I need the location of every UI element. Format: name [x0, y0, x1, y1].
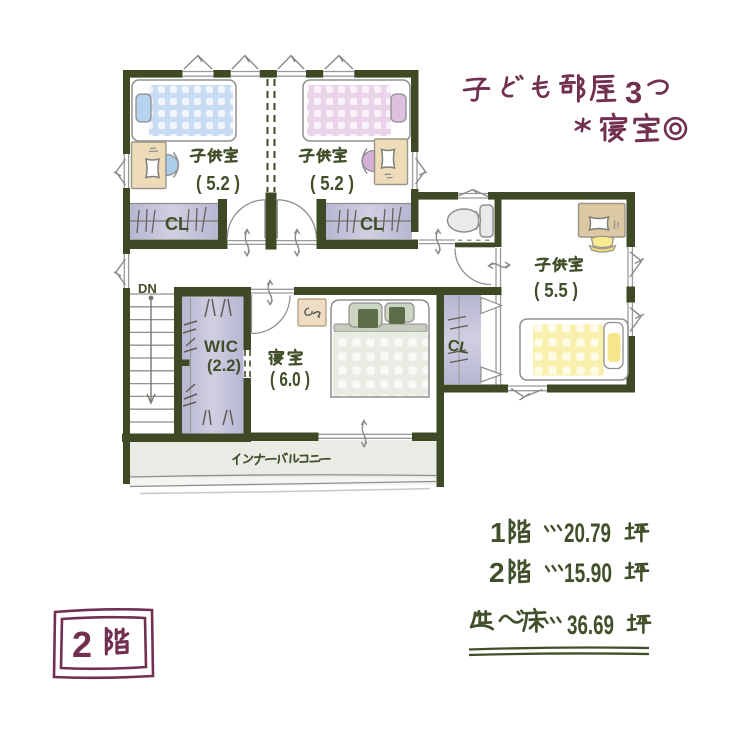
svg-text:20.79: 20.79: [564, 518, 611, 548]
svg-text:( 6.0 ): ( 6.0 ): [270, 369, 310, 391]
svg-text:15.90: 15.90: [564, 558, 612, 588]
svg-text:WIC: WIC: [204, 337, 239, 356]
svg-text:36.69: 36.69: [567, 610, 614, 640]
svg-text:(2.2): (2.2): [207, 356, 241, 375]
svg-text:DN: DN: [138, 281, 157, 296]
svg-text:1: 1: [490, 517, 506, 548]
svg-text:2: 2: [72, 624, 92, 665]
svg-text:( 5.5 ): ( 5.5 ): [534, 280, 578, 302]
svg-text:2: 2: [489, 557, 505, 588]
svg-text:CL: CL: [360, 214, 384, 234]
svg-text:CL: CL: [165, 214, 189, 234]
svg-text:( 5.2 ): ( 5.2 ): [196, 173, 240, 195]
svg-text:3: 3: [625, 75, 642, 110]
svg-text:( 5.2 ): ( 5.2 ): [310, 173, 354, 195]
